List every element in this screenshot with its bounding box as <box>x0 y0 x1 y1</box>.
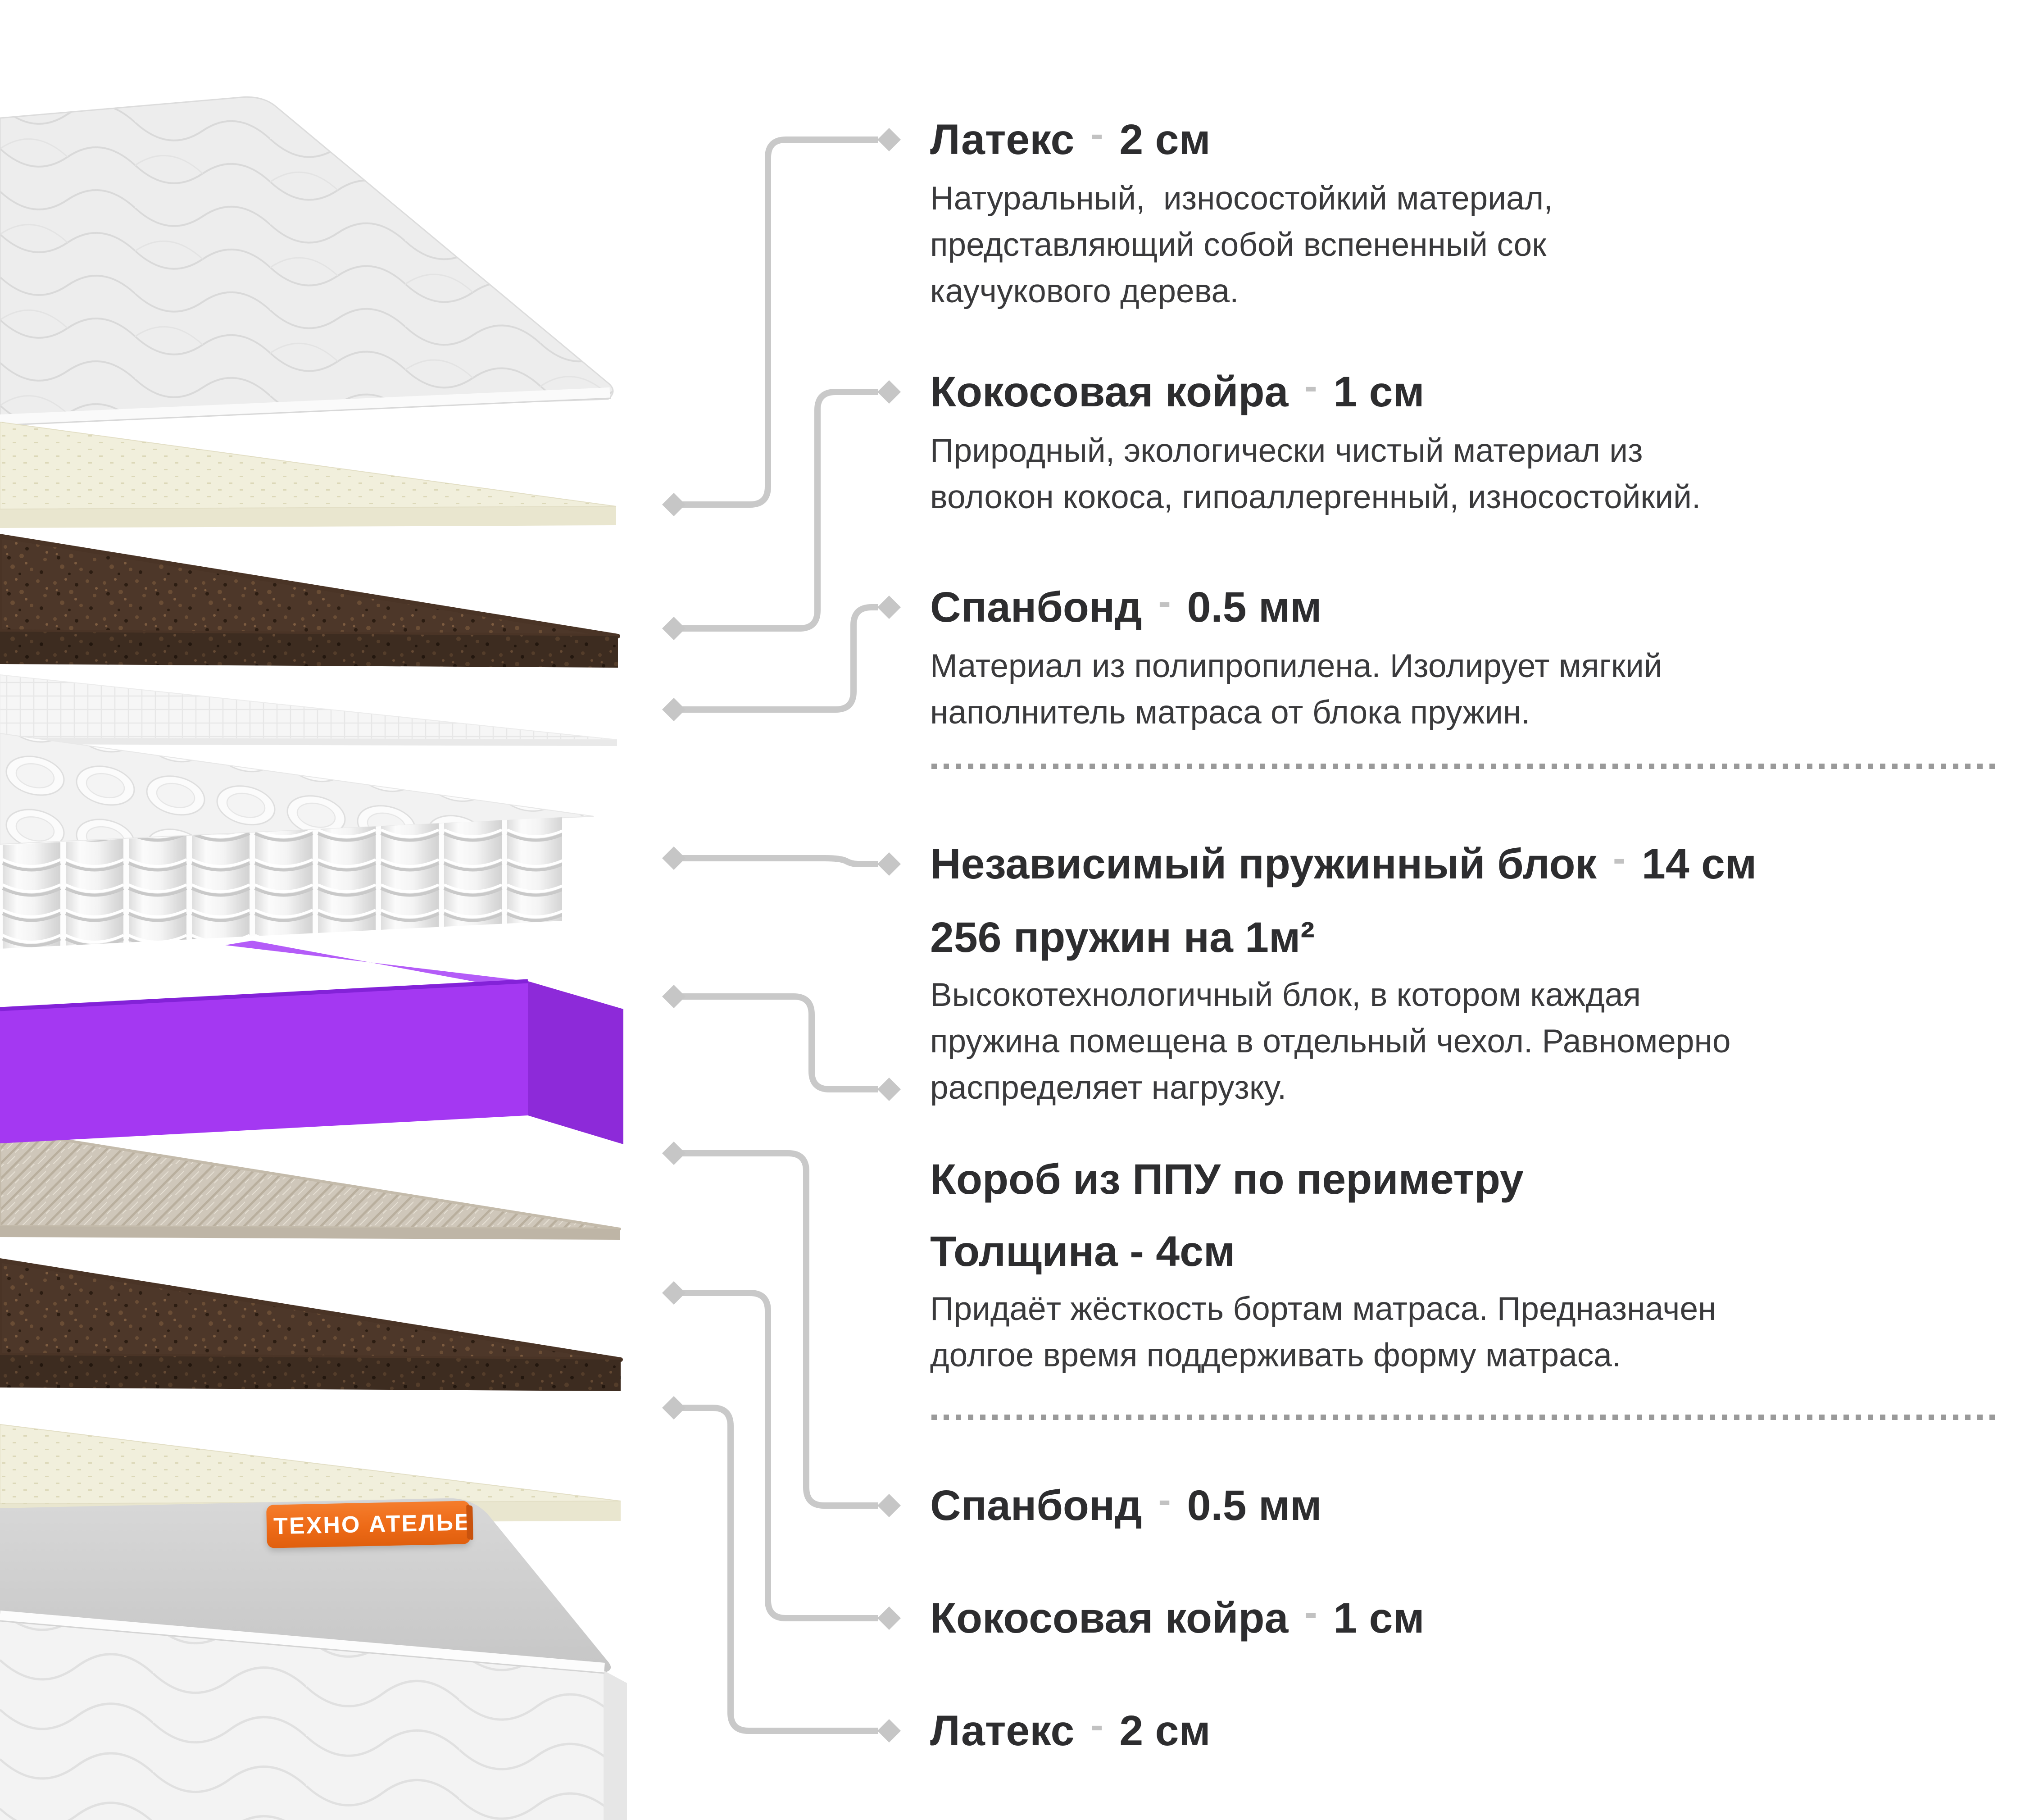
diamond-marker <box>662 493 686 516</box>
dash-separator: - <box>1304 1576 1317 1648</box>
annotation-body: Природный, экологически чистый материал … <box>930 428 1701 520</box>
annotation-subtitle: Толщина - 4см <box>930 1215 1716 1288</box>
mattress-infographic: { "separator": "-", "logo": { "text": "Т… <box>0 0 2025 1820</box>
layer-name: Кокосовая койра <box>930 1594 1288 1642</box>
brand-logo-tag: ТЕХНО АТЕЛЬЕ <box>266 1501 471 1548</box>
body-line: распределяет нагрузку. <box>930 1065 1757 1111</box>
layer-thickness: 0.5 мм <box>1187 1482 1322 1529</box>
body-line: каучукового дерева. <box>930 268 1553 314</box>
connector-line-spunbond-bottom <box>681 1153 878 1506</box>
connector-line-coir-bottom <box>681 1293 878 1618</box>
annotation-title: Независимый пружинный блок-14 см <box>930 828 1757 901</box>
dash-separator: - <box>1613 822 1625 894</box>
diamond-marker <box>662 617 686 640</box>
diamond-marker <box>662 1142 686 1165</box>
diamond-marker <box>877 1078 901 1101</box>
annotation-body: Придаёт жёсткость бортам матраса. Предна… <box>930 1286 1716 1379</box>
layer-name: Спанбонд <box>930 1482 1142 1529</box>
diamond-marker <box>877 1719 901 1743</box>
body-line: Природный, экологически чистый материал … <box>930 428 1701 474</box>
body-line: Высокотехнологичный блок, в котором кажд… <box>930 972 1757 1018</box>
diamond-marker <box>877 1606 901 1630</box>
diamond-marker <box>662 985 686 1008</box>
annotation-body: Натуральный, износостойкий материал, пре… <box>930 175 1553 314</box>
annotation-latex-bottom: Латекс-2 см <box>930 1695 1211 1768</box>
body-line: пружина помещена в отдельный чехол. Равн… <box>930 1018 1757 1065</box>
annotation-title: Спанбонд-0.5 мм <box>930 571 1662 645</box>
annotation-title: Латекс-2 см <box>930 104 1553 177</box>
body-line: наполнитель матраса от блока пружин. <box>930 689 1662 736</box>
diamond-marker <box>877 380 901 404</box>
annotation-title: Короб из ППУ по периметру <box>930 1143 1716 1215</box>
body-line: Придаёт жёсткость бортам матраса. Предна… <box>930 1286 1716 1332</box>
body-line: Материал из полипропилена. Изолирует мяг… <box>930 643 1662 689</box>
annotation-latex-top: Латекс-2 см Натуральный, износостойкий м… <box>930 104 1553 314</box>
annotation-spunbond-bottom: Спанбонд-0.5 мм <box>930 1470 1322 1543</box>
layer-thickness: 1 см <box>1333 368 1424 416</box>
body-line: представляющий собой вспененный сок <box>930 222 1553 268</box>
body-line: долгое время поддерживать форму матраса. <box>930 1332 1716 1379</box>
annotation-body: Высокотехнологичный блок, в котором кажд… <box>930 972 1757 1111</box>
dotted-divider <box>931 1415 1996 1420</box>
annotation-title: Спанбонд-0.5 мм <box>930 1470 1322 1543</box>
connector-line-springs <box>681 858 878 864</box>
body-line: волокон кокоса, гипоаллергенный, износос… <box>930 474 1701 520</box>
layer-thickness: 2 см <box>1119 116 1210 164</box>
body-line: Натуральный, износостойкий материал, <box>930 175 1553 222</box>
annotation-coir-bottom: Кокосовая койра-1 см <box>930 1582 1425 1656</box>
annotation-coir-top: Кокосовая койра-1 см Природный, экологич… <box>930 356 1701 520</box>
diamond-marker <box>877 596 901 619</box>
layer-name: Независимый пружинный блок <box>930 840 1597 888</box>
layer-name: Кокосовая койра <box>930 368 1288 416</box>
layer-thickness: 1 см <box>1333 1594 1424 1642</box>
annotation-title: Кокосовая койра-1 см <box>930 1582 1425 1656</box>
connector-line-coir-top <box>681 392 878 628</box>
connector-line-spunbond-top <box>681 607 878 710</box>
diamond-marker <box>662 1281 686 1305</box>
dash-separator: - <box>1158 565 1171 637</box>
connector-line-latex-top <box>681 140 878 505</box>
layer-name: Латекс <box>930 1707 1074 1755</box>
layer-thickness: 0.5 мм <box>1187 583 1322 631</box>
layer-thickness: 2 см <box>1119 1707 1210 1755</box>
layer-thickness: 14 см <box>1642 840 1757 888</box>
dash-separator: - <box>1304 350 1317 422</box>
diamond-marker <box>877 128 901 151</box>
annotation-body: Материал из полипропилена. Изолирует мяг… <box>930 643 1662 736</box>
annotation-title: Кокосовая койра-1 см <box>930 356 1701 429</box>
diamond-marker <box>662 698 686 721</box>
diamond-marker <box>877 1494 901 1517</box>
annotation-spring-block: Независимый пружинный блок-14 см 256 пру… <box>930 828 1757 1111</box>
connector-line-latex-bottom <box>681 1408 878 1731</box>
dash-separator: - <box>1090 98 1103 170</box>
dash-separator: - <box>1090 1689 1103 1761</box>
annotation-subtitle: 256 пружин на 1м² <box>930 901 1757 974</box>
layer-name: Спанбонд <box>930 583 1142 631</box>
dotted-divider <box>931 764 1996 769</box>
diamond-marker <box>662 846 686 870</box>
annotation-spunbond-top: Спанбонд-0.5 мм Материал из полипропилен… <box>930 571 1662 736</box>
layer-name: Латекс <box>930 116 1074 164</box>
annotation-title: Латекс-2 см <box>930 1695 1211 1768</box>
connector-line-ppu-box <box>681 996 878 1089</box>
dash-separator: - <box>1158 1464 1171 1536</box>
brand-logo-text: ТЕХНО АТЕЛЬЕ <box>273 1509 472 1540</box>
diamond-marker <box>662 1396 686 1420</box>
diamond-marker <box>877 852 901 876</box>
annotation-ppu-box: Короб из ППУ по периметру Толщина - 4см … <box>930 1143 1716 1379</box>
